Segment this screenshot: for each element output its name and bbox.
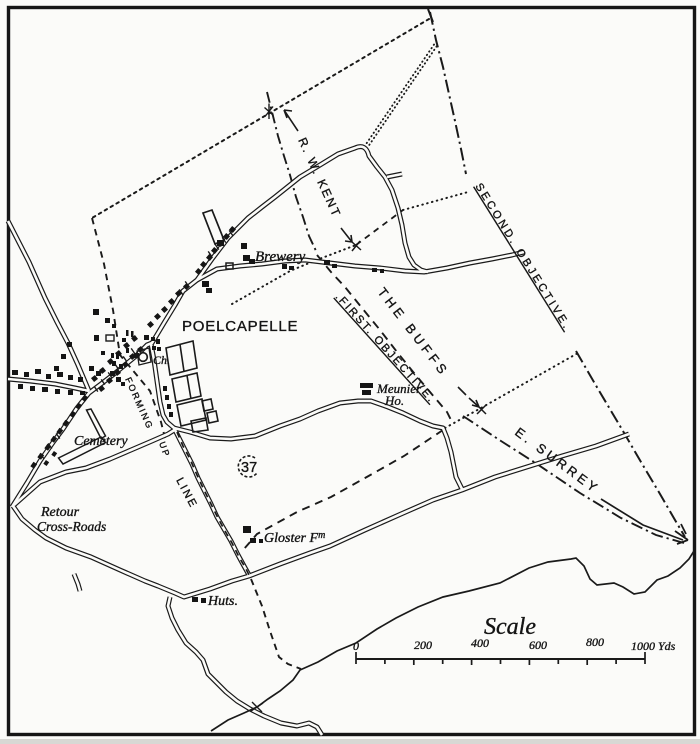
svg-text:POELCAPELLE: POELCAPELLE (182, 318, 298, 335)
svg-text:0: 0 (353, 639, 359, 653)
svg-text:1000 Yds: 1000 Yds (631, 639, 676, 653)
svg-text:Huts.: Huts. (207, 594, 238, 609)
svg-text:200: 200 (414, 638, 432, 652)
svg-text:Brewery: Brewery (255, 249, 306, 265)
svg-text:Cemetery: Cemetery (74, 434, 128, 449)
svg-text:37: 37 (241, 460, 257, 476)
svg-text:Cross-Roads: Cross-Roads (37, 519, 106, 534)
svg-text:800: 800 (586, 635, 604, 649)
svg-text:Ch.: Ch. (153, 353, 170, 367)
svg-text:Gloster Fm: Gloster Fm (264, 530, 325, 546)
svg-text:Retour: Retour (40, 505, 80, 520)
svg-text:400: 400 (471, 636, 489, 650)
svg-text:Scale: Scale (484, 614, 536, 640)
svg-text:Ho.: Ho. (384, 393, 404, 408)
svg-text:600: 600 (529, 638, 547, 652)
